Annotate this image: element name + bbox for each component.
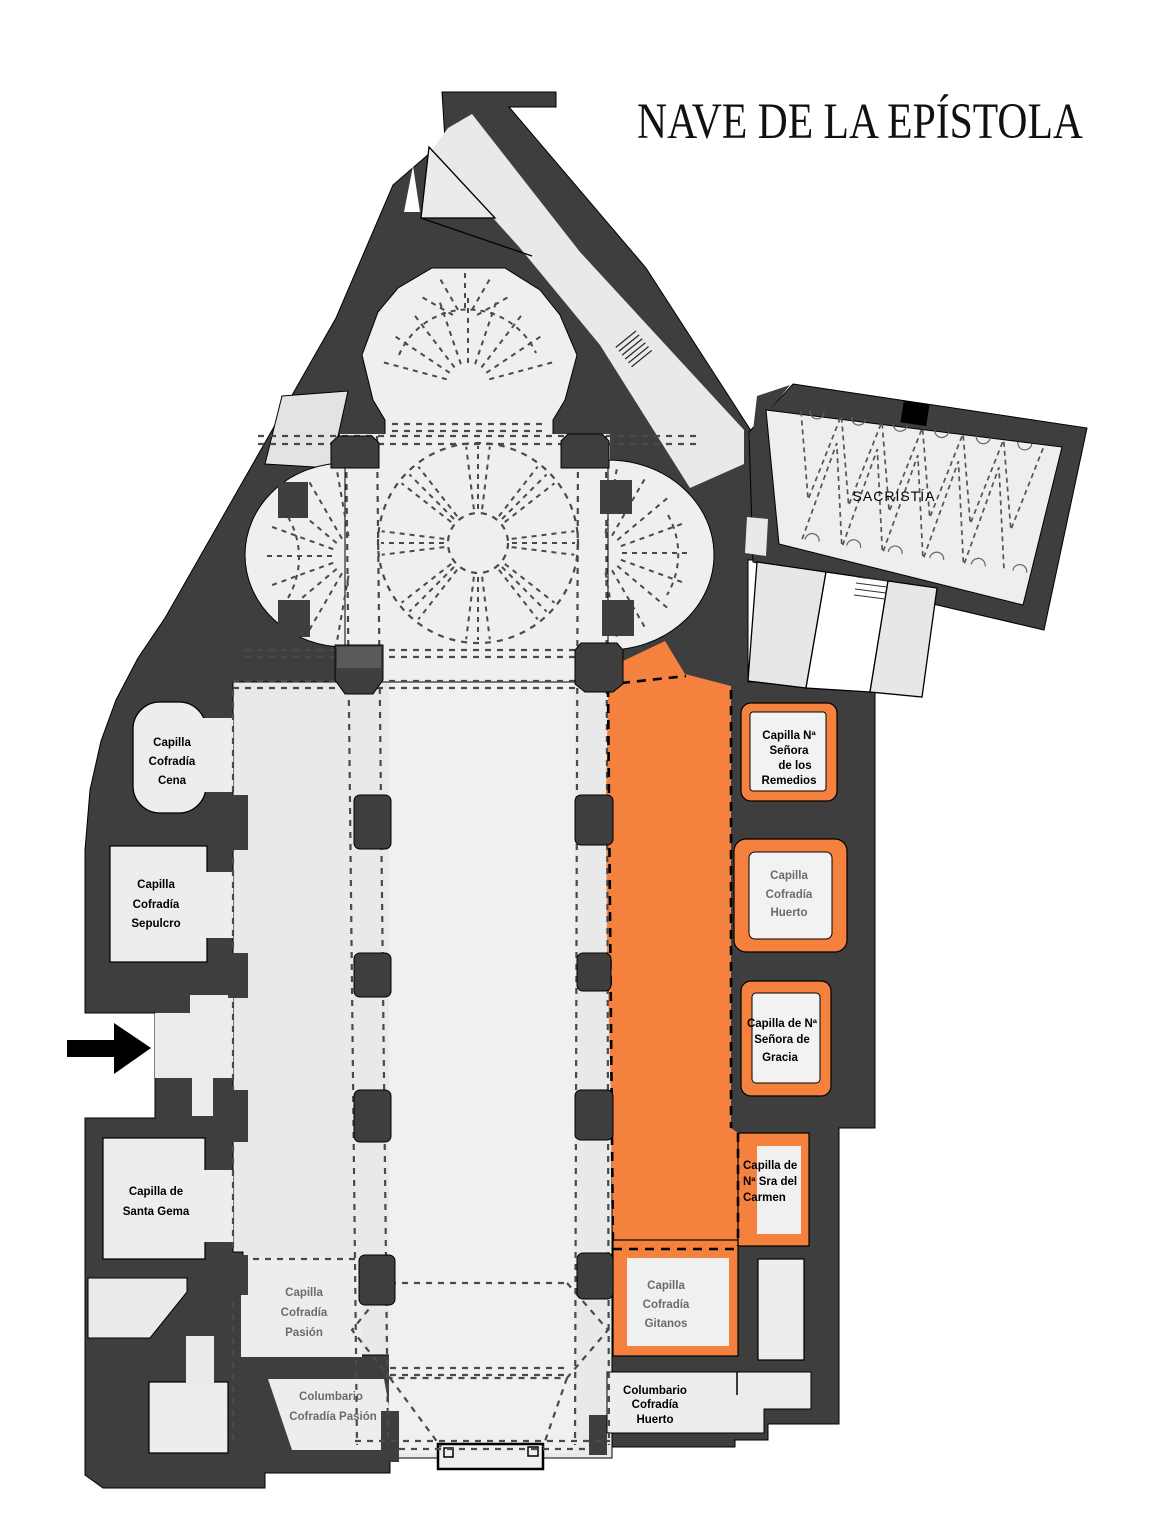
svg-text:Capilla: Capilla — [137, 879, 175, 891]
svg-text:Huerto: Huerto — [770, 907, 807, 919]
svg-text:Capilla: Capilla — [153, 737, 191, 749]
svg-text:Cofradía: Cofradía — [281, 1307, 328, 1319]
svg-text:Capilla Nª: Capilla Nª — [762, 730, 816, 742]
svg-text:Señora de: Señora de — [754, 1034, 810, 1046]
svg-text:Capilla: Capilla — [647, 1280, 685, 1292]
svg-text:Capilla de: Capilla de — [129, 1186, 183, 1198]
svg-text:Remedios: Remedios — [762, 775, 817, 787]
svg-text:Columbario: Columbario — [623, 1385, 687, 1397]
svg-text:Cofradía: Cofradía — [643, 1299, 690, 1311]
svg-text:SACRISTÍA: SACRISTÍA — [853, 488, 936, 504]
svg-text:Cofradía: Cofradía — [766, 889, 813, 901]
svg-text:Huerto: Huerto — [636, 1414, 673, 1426]
svg-text:Cofradía: Cofradía — [632, 1399, 679, 1411]
svg-text:Cena: Cena — [158, 775, 187, 787]
svg-text:Cofradía: Cofradía — [149, 756, 196, 768]
svg-text:NAVE DE LA EPÍSTOLA: NAVE DE LA EPÍSTOLA — [637, 94, 1083, 150]
svg-text:Gracia: Gracia — [762, 1052, 798, 1064]
svg-text:Santa Gema: Santa Gema — [123, 1206, 190, 1218]
svg-text:de los: de los — [778, 760, 811, 772]
svg-text:Sepulcro: Sepulcro — [131, 918, 180, 930]
svg-text:Columbario: Columbario — [299, 1391, 363, 1403]
svg-text:Señora: Señora — [770, 745, 810, 757]
svg-text:Carmen: Carmen — [743, 1192, 786, 1204]
svg-text:Capilla: Capilla — [770, 870, 808, 882]
svg-text:Gitanos: Gitanos — [645, 1318, 688, 1330]
svg-text:Pasión: Pasión — [285, 1327, 323, 1339]
svg-text:Nª Sra del: Nª Sra del — [743, 1176, 797, 1188]
svg-text:Capilla: Capilla — [285, 1287, 323, 1299]
svg-text:Capilla de Nª: Capilla de Nª — [747, 1018, 818, 1030]
svg-text:Cofradía Pasión: Cofradía Pasión — [289, 1411, 377, 1423]
svg-text:Capilla de: Capilla de — [743, 1160, 797, 1172]
svg-text:Cofradía: Cofradía — [133, 899, 180, 911]
